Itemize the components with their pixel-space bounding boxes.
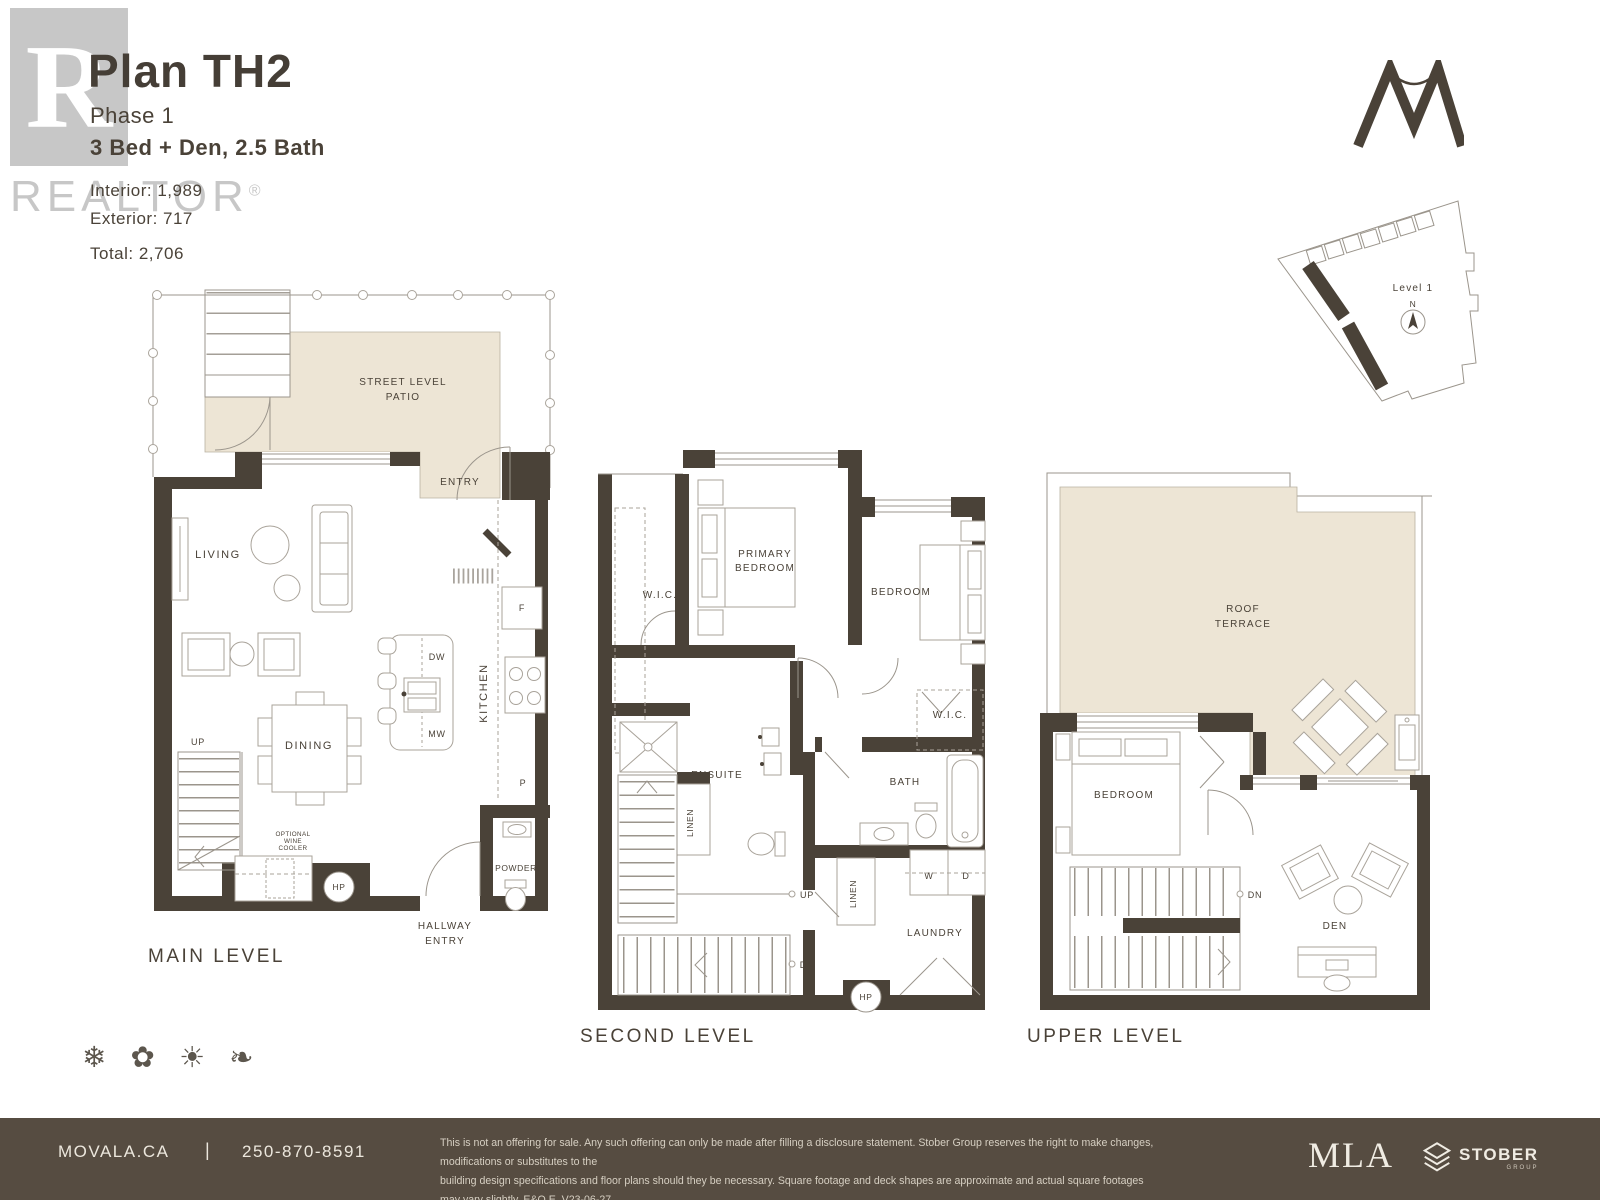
svg-text:WINE: WINE xyxy=(284,838,302,845)
stober-icon xyxy=(1422,1142,1452,1174)
movala-m-logo xyxy=(1352,60,1464,150)
site-keymap: Level 1 N xyxy=(1262,195,1502,420)
interior-sqft: Interior: 1,989 xyxy=(90,181,202,201)
den-furniture xyxy=(1282,843,1409,991)
second-level-plan: W.I.C. PRIMARY BEDROOM BEDROOM W.I.C. xyxy=(585,445,995,1025)
den-label: DEN xyxy=(1323,921,1348,932)
upper-bedroom-label: BEDROOM xyxy=(1094,790,1154,801)
phase-label: Phase 1 xyxy=(90,103,174,129)
total-sqft: Total: 2,706 xyxy=(90,244,184,264)
main-level-name: MAIN LEVEL xyxy=(148,946,285,968)
hp-label-second: HP xyxy=(859,992,872,1002)
north-compass-icon: N xyxy=(1401,299,1425,334)
entry-label: ENTRY xyxy=(440,477,480,488)
exterior-sqft: Exterior: 717 xyxy=(90,209,193,229)
wine-label: OPTIONAL xyxy=(275,831,310,838)
living-furniture xyxy=(172,505,352,676)
laundry-label: LAUNDRY xyxy=(907,928,963,939)
dn-label-upper: DN xyxy=(1248,890,1263,900)
living-window xyxy=(262,452,390,466)
linen-right-label: LINEN xyxy=(848,880,858,908)
site-level-label: Level 1 xyxy=(1393,283,1434,294)
dishwasher-label: DW xyxy=(429,652,446,662)
up-label-2: UP xyxy=(800,890,814,900)
svg-text:COOLER: COOLER xyxy=(279,845,308,852)
second-stairs xyxy=(618,775,795,995)
dryer-label: D xyxy=(962,871,969,881)
floorplan-sheet: R REALTOR® Plan TH2 Phase 1 3 Bed + Den,… xyxy=(0,0,1600,1200)
footer-separator: | xyxy=(205,1140,210,1161)
laundry-fixtures xyxy=(815,850,985,995)
autumn-leaf-icon: ❧ xyxy=(229,1040,253,1074)
mla-logo: MLA xyxy=(1308,1134,1394,1176)
hp-label-main: HP xyxy=(332,882,345,892)
main-level-plan: STREET LEVEL PATIO xyxy=(138,278,558,968)
fridge-label: F xyxy=(519,603,525,613)
dining-label: DINING xyxy=(285,740,333,752)
wine-cooler xyxy=(235,856,312,901)
svg-text:BEDROOM: BEDROOM xyxy=(735,563,795,574)
spring-flower-icon: ✿ xyxy=(131,1040,155,1074)
wic-right-label: W.I.C. xyxy=(933,710,967,721)
upper-level-plan: ROOF TERRACE xyxy=(1018,448,1438,1018)
site-units-row xyxy=(1306,211,1434,265)
svg-text:N: N xyxy=(1410,299,1417,309)
footer-website: MOVALA.CA xyxy=(58,1142,169,1162)
bath-fixtures xyxy=(825,752,983,847)
terrace-bbq xyxy=(1395,715,1419,770)
dn-label-2: DN xyxy=(800,960,815,970)
svg-text:TERRACE: TERRACE xyxy=(1215,619,1271,630)
hallway-entry-label: HALLWAY xyxy=(418,921,472,932)
upper-stairs xyxy=(1070,867,1243,990)
hallway-door xyxy=(426,842,480,896)
main-stairs xyxy=(178,752,242,870)
svg-text:ENTRY: ENTRY xyxy=(425,936,465,947)
footer-disclaimer: This is not an offering for sale. Any su… xyxy=(440,1134,1160,1200)
roof-terrace-label: ROOF xyxy=(1226,604,1260,615)
bath-label: BATH xyxy=(890,777,921,788)
bed-bath-config: 3 Bed + Den, 2.5 Bath xyxy=(90,135,325,161)
footer-phone: 250-870-8591 xyxy=(242,1142,366,1162)
upper-level-name: UPPER LEVEL xyxy=(1027,1026,1184,1048)
season-icons: ❄ ✿ ☀ ❧ xyxy=(82,1040,269,1074)
living-label: LIVING xyxy=(195,549,241,561)
pantry-label: P xyxy=(520,778,527,788)
washer-label: W xyxy=(924,871,933,881)
winter-snowflake-icon: ❄ xyxy=(82,1040,106,1074)
footer-bar: MOVALA.CA | 250-870-8591 This is not an … xyxy=(0,1118,1600,1200)
patio-label: STREET LEVEL xyxy=(359,377,447,388)
summer-sun-icon: ☀ xyxy=(179,1040,205,1074)
wic-left-label: W.I.C. xyxy=(643,590,677,601)
ensuite-label: ENSUITE xyxy=(691,770,743,781)
bedroom2-label: BEDROOM xyxy=(871,587,931,598)
stober-group-logo: STOBER GROUP xyxy=(1422,1142,1539,1174)
site-highlight-units xyxy=(1308,265,1382,387)
linen-left-label: LINEN xyxy=(685,809,695,837)
second-windows xyxy=(715,450,951,517)
svg-text:PATIO: PATIO xyxy=(386,392,421,403)
primary-bedroom-label: PRIMARY xyxy=(738,549,792,560)
kitchen-fixtures xyxy=(378,500,545,798)
up-label: UP xyxy=(191,737,205,747)
wic-left-closet xyxy=(615,508,645,753)
kitchen-label: KITCHEN xyxy=(478,663,490,722)
powder-label: POWDER xyxy=(495,863,537,873)
page-title: Plan TH2 xyxy=(88,44,293,98)
second-level-name: SECOND LEVEL xyxy=(580,1026,756,1048)
microwave-label: MW xyxy=(428,729,446,739)
